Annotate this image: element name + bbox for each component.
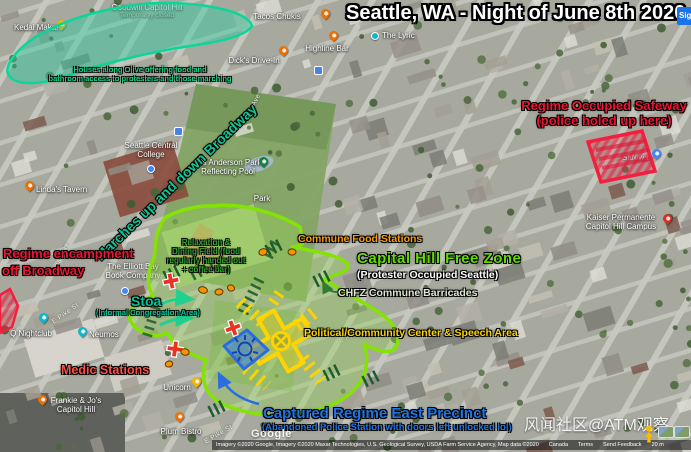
safeway-label: (police holed up here) xyxy=(536,113,671,128)
chfz-subtitle-label: (Protester Occupied Seattle) xyxy=(357,269,498,281)
olive-houses-label: bathroom access to protesters and those … xyxy=(49,74,232,83)
imagery-thumbnail[interactable] xyxy=(674,426,690,438)
chfz-title-label: Capital Hill Free Zone xyxy=(357,250,521,267)
relaxation-label: regularly handed out xyxy=(166,256,245,265)
olive-houses-label: Houses along Olive offering food and xyxy=(73,65,206,74)
safeway-label: Regime Occupied Safeway xyxy=(521,98,686,113)
political-center-label: Political/Community Center & Speech Area xyxy=(304,327,518,339)
attribution-bar: Imagery ©2020 Google, Imagery ©2020 Maxa… xyxy=(212,440,691,450)
relaxation-label: Relaxation & xyxy=(182,238,230,247)
sign-in-button[interactable]: Sign in xyxy=(677,7,691,25)
relaxation-label: Dining Field (food xyxy=(172,247,240,256)
region-link[interactable]: Canada xyxy=(549,442,568,448)
map-screenshot: Goodwill Capitol Hill Temporarily closed… xyxy=(0,0,691,452)
page-title: Seattle, WA - Night of June 8th 2020 xyxy=(346,2,685,25)
precinct-label: Captured Regime East Precinct xyxy=(263,405,486,422)
annotation-labels: Houses along Olive offering food and bat… xyxy=(0,0,691,452)
encampment-label: off Broadway xyxy=(2,263,84,278)
marches-broadway-label: Marches up and down Broadway xyxy=(92,101,260,264)
food-stations-label: Commune Food Stations xyxy=(298,233,422,245)
stoa-label: Stoa xyxy=(131,293,161,309)
pegman-icon[interactable] xyxy=(643,425,655,443)
feedback-link[interactable]: Send Feedback xyxy=(603,442,642,448)
relaxation-label: + coffee bar) xyxy=(182,265,230,274)
precinct-sub-label: (Abandoned Police Station with doors lef… xyxy=(262,422,512,433)
google-logo: Google xyxy=(251,428,292,440)
imagery-thumbnail[interactable] xyxy=(658,426,674,438)
encampment-label: Regime encampment xyxy=(3,246,134,261)
barricades-label: CHFZ Commune Barricades xyxy=(338,287,477,299)
medic-stations-label: Medic Stations xyxy=(61,363,149,377)
terms-link[interactable]: Terms xyxy=(578,442,593,448)
stoa-sub-label: (Informal Congregation Area) xyxy=(96,308,200,317)
imagery-credits: Imagery ©2020 Google, Imagery ©2020 Maxa… xyxy=(216,442,539,448)
